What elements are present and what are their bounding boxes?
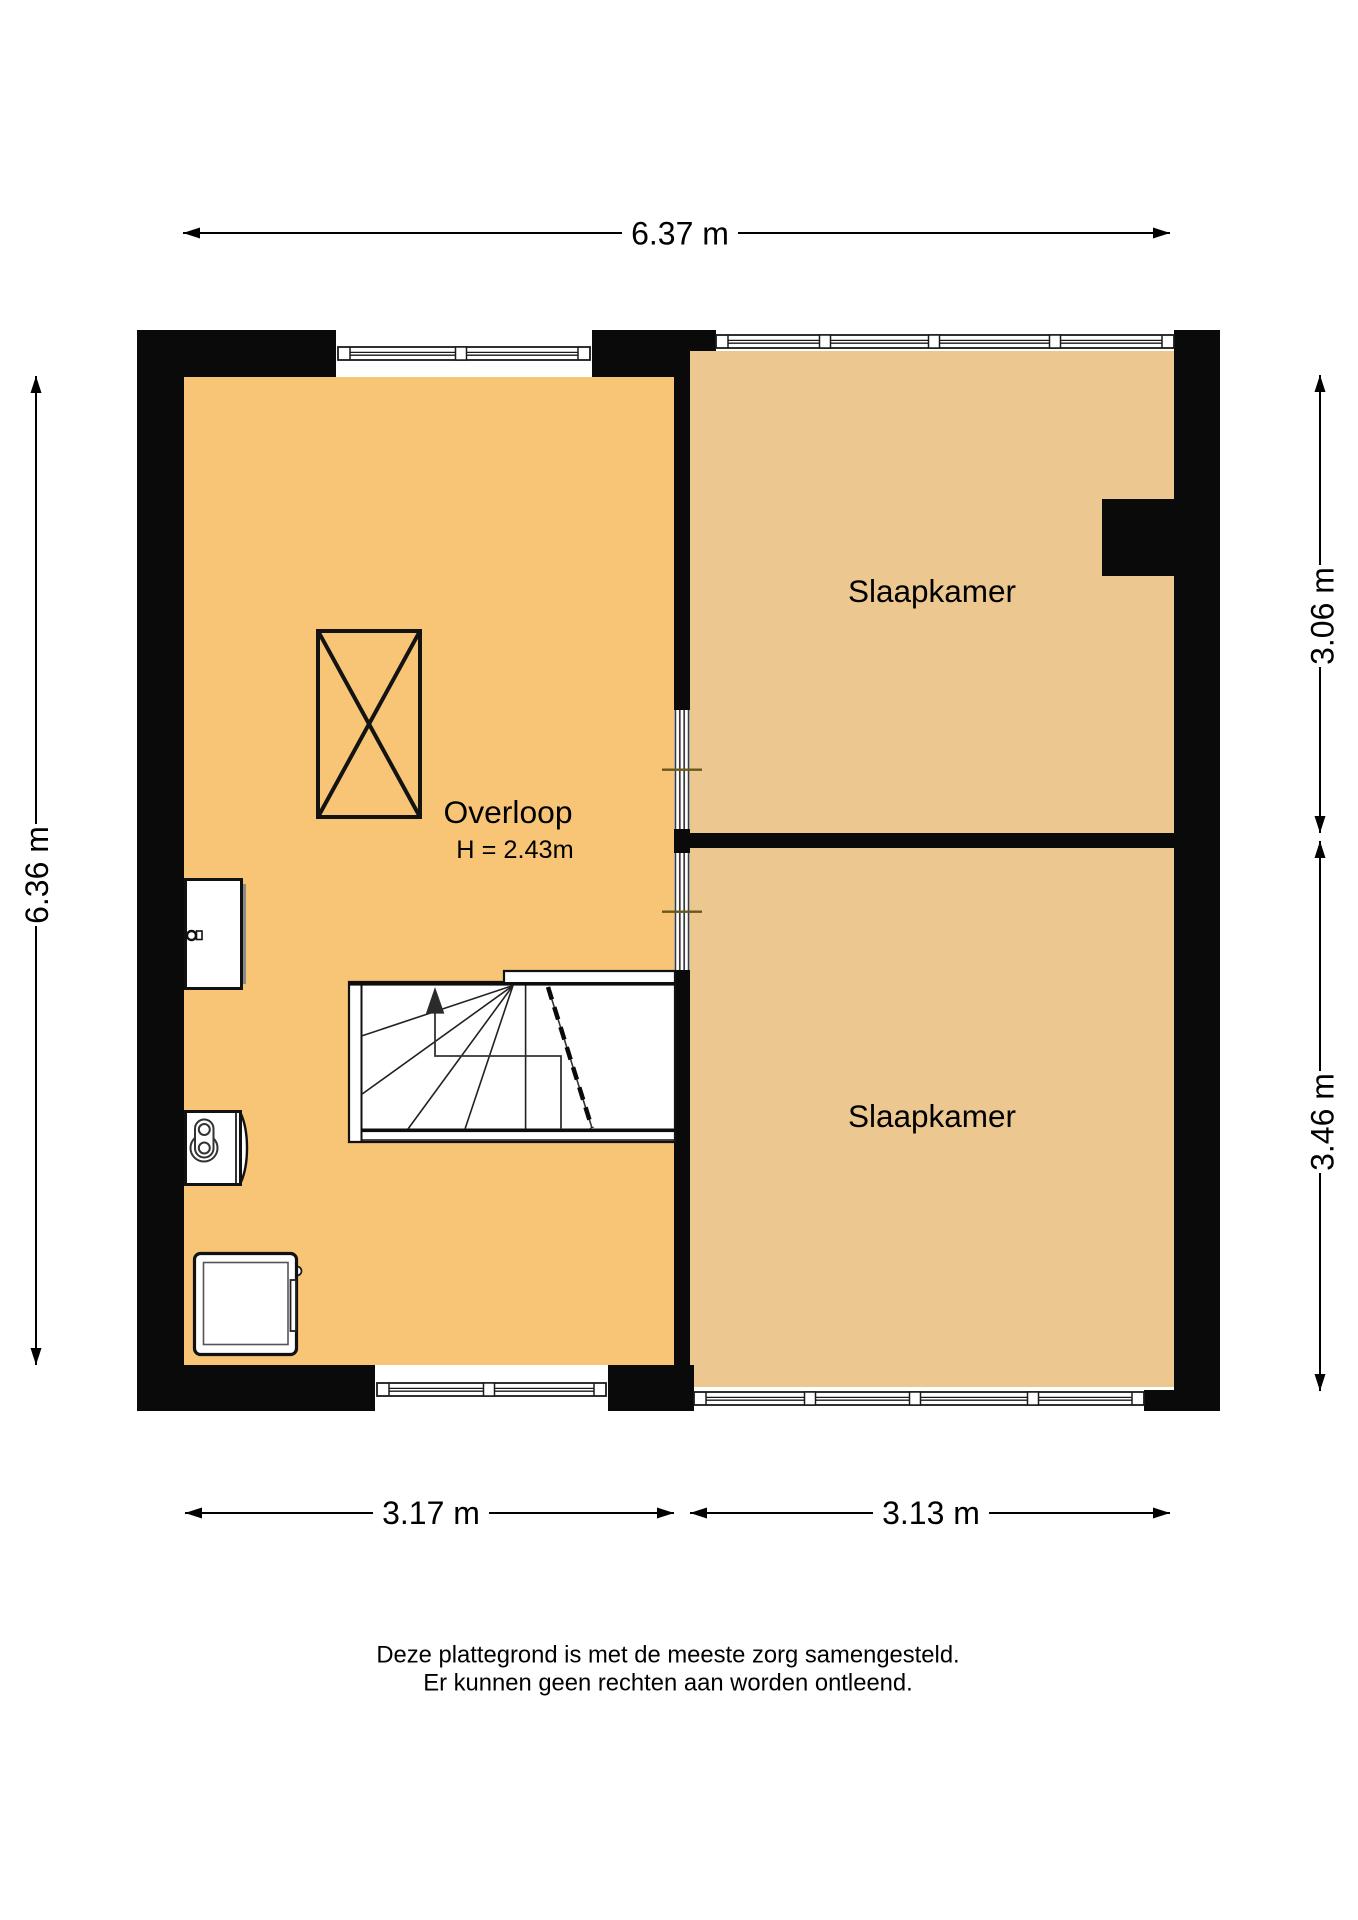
svg-text:Slaapkamer: Slaapkamer (848, 1098, 1016, 1134)
svg-text:3.46 m: 3.46 m (1305, 1073, 1341, 1171)
svg-text:3.17 m: 3.17 m (382, 1495, 480, 1531)
svg-text:6.37 m: 6.37 m (631, 216, 729, 252)
svg-text:Er kunnen geen rechten aan wor: Er kunnen geen rechten aan worden ontlee… (423, 1670, 913, 1697)
svg-text:3.13 m: 3.13 m (882, 1495, 980, 1531)
svg-text:Slaapkamer: Slaapkamer (848, 573, 1016, 609)
svg-text:Overloop: Overloop (443, 794, 572, 830)
svg-text:H = 2.43m: H = 2.43m (456, 836, 573, 864)
svg-text:6.36 m: 6.36 m (19, 826, 55, 924)
svg-text:Deze plattegrond is met de mee: Deze plattegrond is met de meeste zorg s… (376, 1642, 959, 1669)
svg-text:3.06 m: 3.06 m (1305, 567, 1341, 665)
